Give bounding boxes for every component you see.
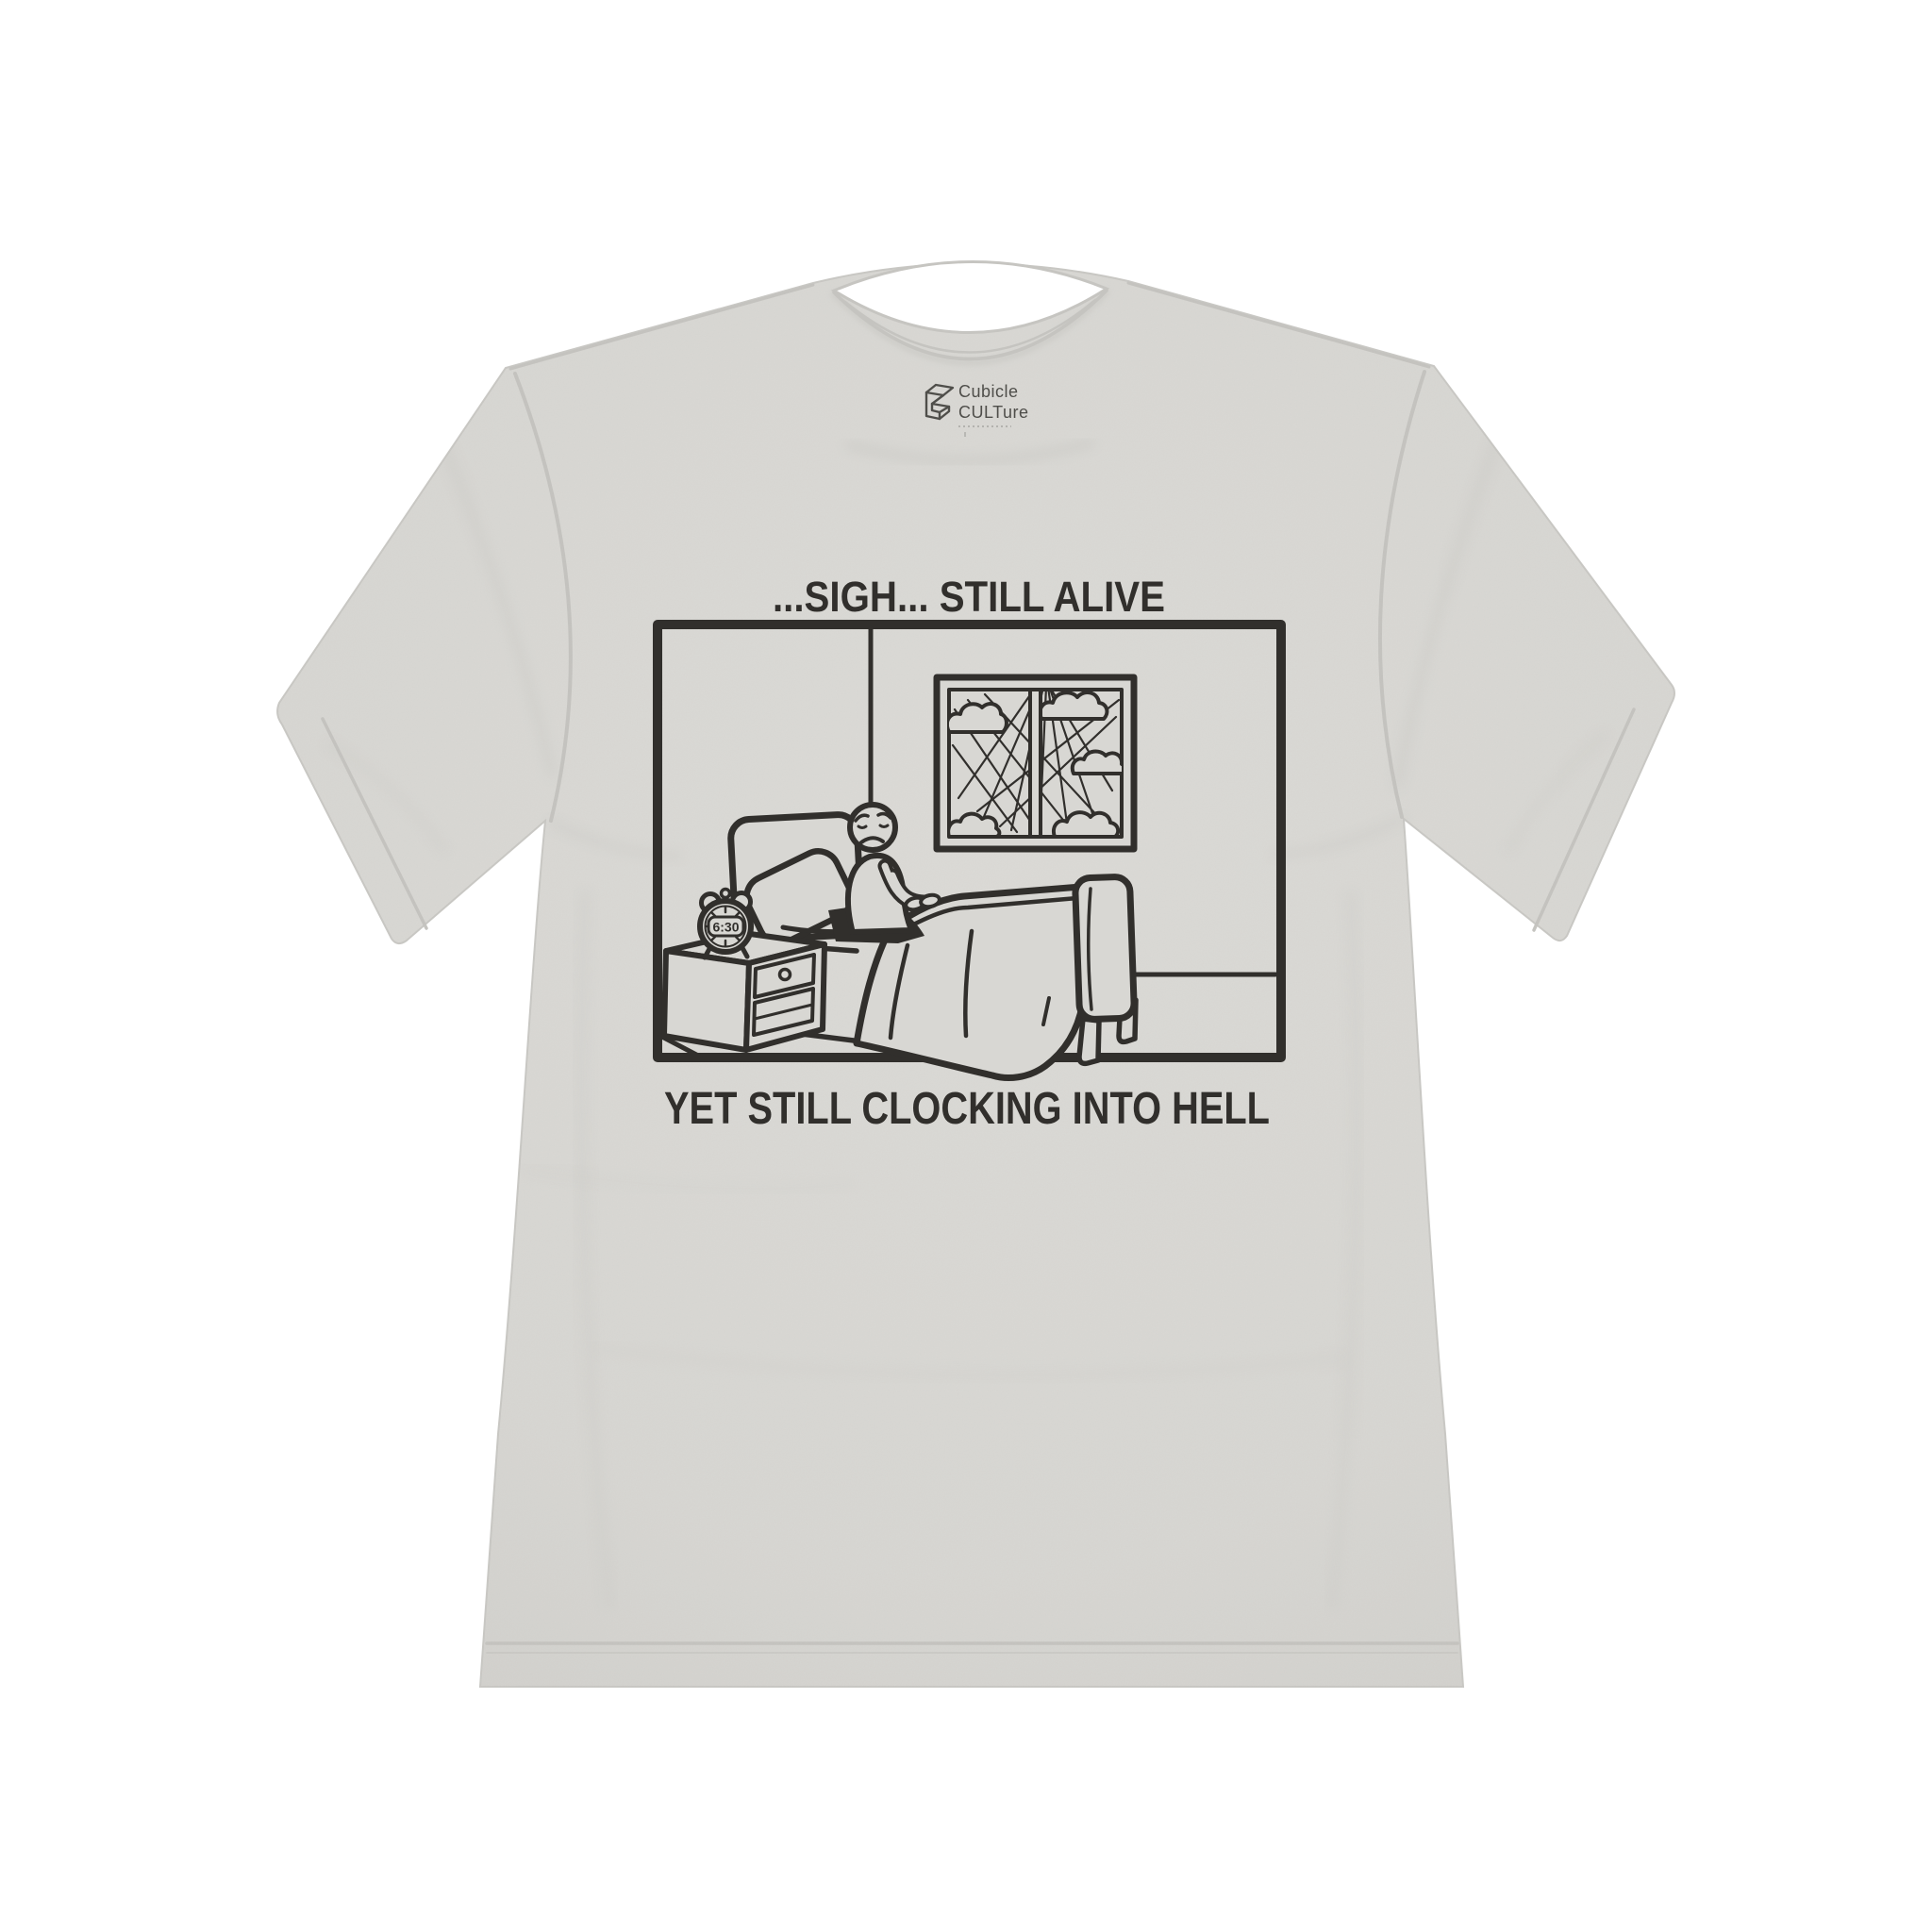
nightstand-side [664, 951, 749, 1050]
product-photo: Cubicle CULTure ...SIGH... STILL ALIVE Y… [0, 0, 1932, 1932]
brand-label-line1: Cubicle [958, 382, 1019, 401]
head [850, 805, 895, 850]
window-icon [937, 677, 1134, 849]
clock-time: 6:30 [712, 920, 739, 935]
tshirt-photo-svg: Cubicle CULTure ...SIGH... STILL ALIVE Y… [0, 0, 1932, 1932]
bed-front-leg [1079, 1019, 1099, 1063]
top-caption: ...SIGH... STILL ALIVE [773, 573, 1165, 621]
clock-top-ring [722, 890, 730, 898]
brand-label-line2: CULTure [958, 403, 1029, 422]
alarm-clock-icon: 6:30 [700, 890, 751, 958]
drawer-knob [780, 970, 791, 980]
window-mullion [1030, 690, 1041, 837]
bottom-caption: YET STILL CLOCKING INTO HELL [664, 1084, 1270, 1134]
